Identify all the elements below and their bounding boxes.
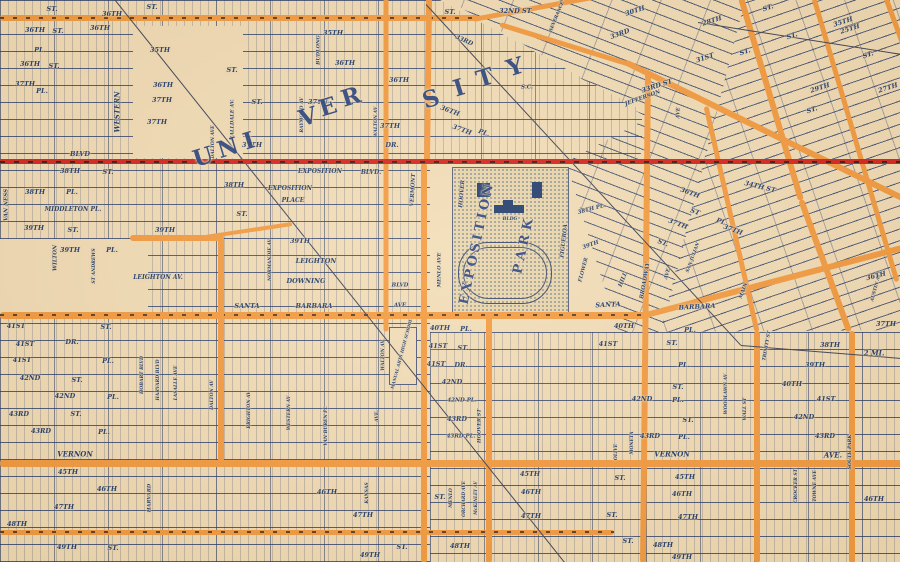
street-label: SAN JULIAN bbox=[687, 242, 702, 273]
street-label: 36TH bbox=[102, 11, 122, 18]
street-label: HARVARD BLVD bbox=[157, 360, 162, 401]
street-label: 39TH bbox=[155, 227, 175, 234]
street-label: 49TH bbox=[360, 552, 380, 559]
street-label: 40TH bbox=[614, 323, 634, 330]
street-label: 2 MI. bbox=[864, 350, 885, 357]
street-label: ST. bbox=[615, 475, 626, 482]
street-label: ST. bbox=[49, 63, 60, 70]
street-label: ST. bbox=[786, 31, 798, 41]
street-label: CROCKER ST bbox=[795, 469, 800, 503]
street-label: PL. bbox=[477, 128, 490, 138]
street-label: PL. bbox=[672, 397, 684, 404]
street-label: BLVD. bbox=[361, 170, 381, 176]
street-label: PL. bbox=[102, 358, 114, 365]
university-district-letter: R bbox=[338, 83, 363, 111]
street-label: 36TH bbox=[153, 82, 173, 89]
street-label: EXPOSITION bbox=[268, 186, 312, 192]
street-label: 42ND bbox=[794, 414, 815, 421]
street-label: ST. bbox=[683, 417, 694, 424]
street-label: 43RD bbox=[31, 428, 51, 435]
street-label: 45TH bbox=[675, 474, 695, 481]
street-label: PL. bbox=[98, 429, 110, 436]
street-label: 48TH bbox=[450, 543, 470, 550]
street-label: 46TH bbox=[521, 489, 541, 496]
street-label: DR. bbox=[454, 362, 467, 369]
street-label: 27TH bbox=[877, 82, 898, 94]
street-label: 41ST bbox=[427, 361, 446, 368]
street-label: MAIN bbox=[739, 282, 749, 299]
street-label: 33RD bbox=[609, 28, 630, 41]
street-label: ST. bbox=[101, 324, 112, 331]
street-label: 49TH bbox=[57, 544, 77, 551]
street-label: EXPOSITION bbox=[298, 169, 342, 175]
street-label: 42ND bbox=[632, 396, 653, 403]
university-district-letter: S bbox=[420, 86, 443, 113]
street-label: VERNON bbox=[654, 451, 689, 458]
street-label: WALL ST bbox=[744, 398, 749, 421]
street-label: HILL bbox=[619, 272, 630, 288]
street-label: WILTON bbox=[53, 245, 59, 271]
street-label: ST bbox=[689, 207, 700, 216]
street-label: 39TH bbox=[805, 362, 825, 369]
street-label: 36TH bbox=[335, 60, 355, 67]
street-label: NORMANDIE AV bbox=[269, 239, 274, 281]
street-label: 37TH bbox=[152, 97, 172, 104]
street-label: BARBARA bbox=[296, 303, 333, 310]
street-label: WESTERN AV bbox=[288, 396, 293, 431]
street-label: MONETA bbox=[631, 431, 636, 454]
street-label: 40TH bbox=[782, 381, 802, 388]
street-label: TRINITY ST bbox=[763, 331, 773, 361]
university-district-letter: T bbox=[473, 64, 496, 91]
street-label: 31ST bbox=[695, 52, 715, 64]
street-label: PL. bbox=[460, 326, 472, 333]
street-label: 45TH bbox=[58, 469, 78, 476]
street-label: 39TH bbox=[60, 247, 80, 254]
street-label: 36TH bbox=[90, 25, 110, 32]
street-label: 36TH bbox=[20, 61, 40, 68]
street-label: ST. bbox=[108, 545, 119, 552]
street-label: 45TH bbox=[520, 471, 540, 478]
street-label: BRIGHTON AV bbox=[248, 391, 253, 428]
street-label: DR. bbox=[65, 339, 78, 346]
street-label: SEVERANCE bbox=[550, 1, 566, 32]
street-label: 37TH bbox=[876, 321, 896, 328]
street-label: ST. bbox=[147, 4, 158, 11]
street-label: 42ND PL. bbox=[447, 398, 476, 404]
street-label: KANSAS bbox=[366, 482, 371, 503]
street-label: 37TH bbox=[15, 81, 35, 88]
street-label: 42ND bbox=[20, 375, 41, 382]
street-label: ST. bbox=[762, 3, 774, 13]
street-label: AVE bbox=[394, 303, 406, 309]
university-district-letter: I bbox=[240, 128, 257, 153]
street-label: SOUTH PARK bbox=[849, 435, 854, 469]
street-label: AVE bbox=[664, 268, 672, 280]
street-label: 46TH bbox=[97, 486, 117, 493]
street-label: 39TH bbox=[290, 238, 310, 245]
street-label: 39TH bbox=[582, 241, 600, 252]
street-label: 33RD bbox=[454, 34, 473, 47]
street-label: WESTERN bbox=[114, 91, 121, 132]
street-label: ST. bbox=[103, 169, 114, 176]
street-label: MIDDLETON PL. bbox=[45, 207, 102, 213]
street-label: TOWNE AVE bbox=[814, 470, 819, 502]
park-building-label: BLDG bbox=[503, 218, 518, 223]
street-label: ST. bbox=[237, 211, 248, 218]
street-label: HOOVER bbox=[459, 180, 467, 208]
street-label: 43RD bbox=[9, 411, 29, 418]
street-label: 38TH PL. bbox=[577, 204, 606, 217]
street-label: WALTON AV. bbox=[382, 339, 387, 370]
street-label: LASALLE AVE bbox=[175, 366, 180, 401]
street-label: 46TH bbox=[317, 489, 337, 496]
street-label: 42ND bbox=[442, 379, 463, 386]
street-label: DOWNING bbox=[286, 278, 325, 285]
street-label: 41ST bbox=[13, 357, 32, 364]
vintage-street-map: ST.36THST.36THST.36THPL.35TH36THST.36TH3… bbox=[0, 0, 900, 562]
street-label: 43RD PL. bbox=[447, 434, 476, 440]
university-district-letter: E bbox=[316, 93, 339, 120]
street-label: 32ND ST. bbox=[499, 8, 533, 15]
street-label: ST. bbox=[72, 377, 83, 384]
street-label: WALTON AV bbox=[375, 107, 380, 138]
street-label: 48TH bbox=[653, 542, 673, 549]
street-label: VAN BUREN PL bbox=[325, 406, 330, 445]
street-label: ST. bbox=[806, 105, 818, 115]
street-label: ST. bbox=[739, 47, 751, 57]
street-label: ORCHARD AVE bbox=[462, 481, 466, 517]
street-label: 37TH bbox=[451, 124, 472, 137]
university-district-letter: N bbox=[215, 134, 242, 162]
street-label: 49TH bbox=[672, 554, 692, 561]
street-label: AVE bbox=[676, 107, 681, 118]
street-label: 37TH bbox=[147, 119, 167, 126]
street-label: 46TH bbox=[672, 491, 692, 498]
street-label: McKINLEY AV bbox=[474, 481, 478, 514]
street-label: AVE. bbox=[824, 452, 842, 459]
street-label: MANUAL ARTS HIGH SCHOOL bbox=[391, 318, 414, 389]
street-label: ST. bbox=[68, 227, 79, 234]
street-label: 47TH bbox=[678, 514, 698, 521]
street-label: ST. bbox=[657, 238, 670, 248]
street-label: 38TH bbox=[60, 168, 80, 175]
street-label: 48TH bbox=[7, 521, 27, 528]
street-label: ST. bbox=[458, 345, 469, 352]
street-label: ST. bbox=[667, 340, 678, 347]
street-label: 36TH bbox=[25, 27, 45, 34]
street-label: PL. bbox=[684, 327, 696, 334]
street-label: LEIGHTON AV. bbox=[133, 275, 183, 281]
street-label: ST ANDREWS bbox=[93, 248, 98, 283]
street-label: ST. bbox=[445, 9, 456, 16]
street-label: PL. bbox=[715, 217, 728, 227]
street-label: BLVD bbox=[392, 283, 409, 289]
street-label: SANTA bbox=[595, 301, 621, 309]
street-label: VERMONT bbox=[410, 173, 417, 206]
street-label: VAN NESS bbox=[4, 189, 10, 221]
street-label: DR. bbox=[385, 142, 398, 149]
street-label: 36TH bbox=[679, 187, 700, 200]
street-label: 38TH bbox=[224, 182, 244, 189]
street-label: ST. bbox=[435, 494, 446, 501]
street-label: S.C. bbox=[521, 85, 533, 91]
street-label: 41ST bbox=[429, 343, 448, 350]
street-label: ST. bbox=[252, 99, 263, 106]
street-label: 38TH bbox=[820, 342, 840, 349]
street-label: 30TH bbox=[624, 5, 645, 17]
street-label: 43RD bbox=[447, 416, 467, 423]
street-label: LEIGHTON bbox=[296, 258, 337, 265]
street-label: ST. bbox=[673, 384, 684, 391]
street-label: 29TH bbox=[809, 82, 830, 94]
street-label: 41ST bbox=[817, 396, 836, 403]
street-label: HOOVER ST bbox=[478, 409, 483, 443]
street-label: PL. bbox=[678, 434, 690, 441]
street-label: BLVD bbox=[70, 151, 90, 158]
street-label: 47TH bbox=[521, 513, 541, 520]
street-label: 41ST bbox=[7, 323, 26, 330]
street-label: SANTA bbox=[234, 303, 259, 310]
street-label: ST. bbox=[53, 28, 64, 35]
street-label: 40TH bbox=[430, 325, 450, 332]
street-labels-layer: ST.36THST.36THST.36THPL.35TH36THST.36TH3… bbox=[0, 0, 900, 562]
street-label: 35TH bbox=[150, 47, 170, 54]
street-label: 43RD bbox=[815, 433, 835, 440]
street-label: PL. bbox=[36, 88, 48, 95]
street-label: PL. bbox=[66, 189, 78, 196]
street-label: 37TH bbox=[667, 218, 688, 231]
street-label: WOODLAWN AV bbox=[725, 374, 730, 415]
street-label: FLOWER bbox=[578, 257, 589, 282]
street-label: PL. bbox=[678, 362, 690, 369]
street-label: FIGUEROA bbox=[560, 224, 569, 258]
street-label: BARBARA bbox=[678, 303, 715, 311]
street-label: 28TH bbox=[701, 15, 722, 27]
street-label: 46TH bbox=[864, 496, 884, 503]
street-label: 47TH bbox=[353, 512, 373, 519]
street-label: PL. bbox=[106, 247, 118, 254]
street-label: 34TH ST bbox=[744, 180, 776, 194]
street-label: ST. bbox=[227, 67, 238, 74]
street-label: BUDLONG bbox=[317, 35, 322, 65]
street-label: 36TH bbox=[389, 77, 409, 84]
street-label: PLACE bbox=[282, 198, 305, 204]
university-district-letter: Y bbox=[504, 54, 526, 81]
street-label: ST. bbox=[47, 6, 58, 13]
street-label: DALTON AV bbox=[211, 380, 216, 410]
street-label: 37TH bbox=[380, 123, 400, 130]
street-label: ST. bbox=[71, 411, 82, 418]
street-label: OLIVE bbox=[615, 444, 620, 460]
street-label: MENLO AVE bbox=[438, 253, 443, 288]
university-district-letter: I bbox=[450, 75, 467, 100]
street-label: PL. bbox=[107, 394, 119, 401]
street-label: 42ND bbox=[55, 393, 76, 400]
street-label: ST. bbox=[862, 50, 874, 60]
street-label: ST. bbox=[623, 538, 634, 545]
street-label: 35TH bbox=[323, 30, 343, 37]
street-label: ST. bbox=[607, 512, 618, 519]
street-label: HOBART BLVD bbox=[141, 356, 146, 394]
street-label: 43RD bbox=[640, 433, 660, 440]
street-label: 39TH bbox=[24, 225, 44, 232]
street-label: HARVARD bbox=[148, 484, 153, 512]
street-label: MENLO bbox=[450, 488, 455, 508]
street-label: ST. bbox=[397, 544, 408, 551]
street-label: AVE. bbox=[376, 410, 381, 422]
street-label: BROADWAY bbox=[640, 262, 652, 299]
street-label: 41ST bbox=[16, 341, 35, 348]
street-label: PL. bbox=[34, 47, 46, 54]
street-label: 38TH bbox=[25, 189, 45, 196]
street-label: VERNON bbox=[57, 451, 92, 458]
street-label: 41ST bbox=[599, 341, 618, 348]
street-label: 47TH bbox=[54, 504, 74, 511]
